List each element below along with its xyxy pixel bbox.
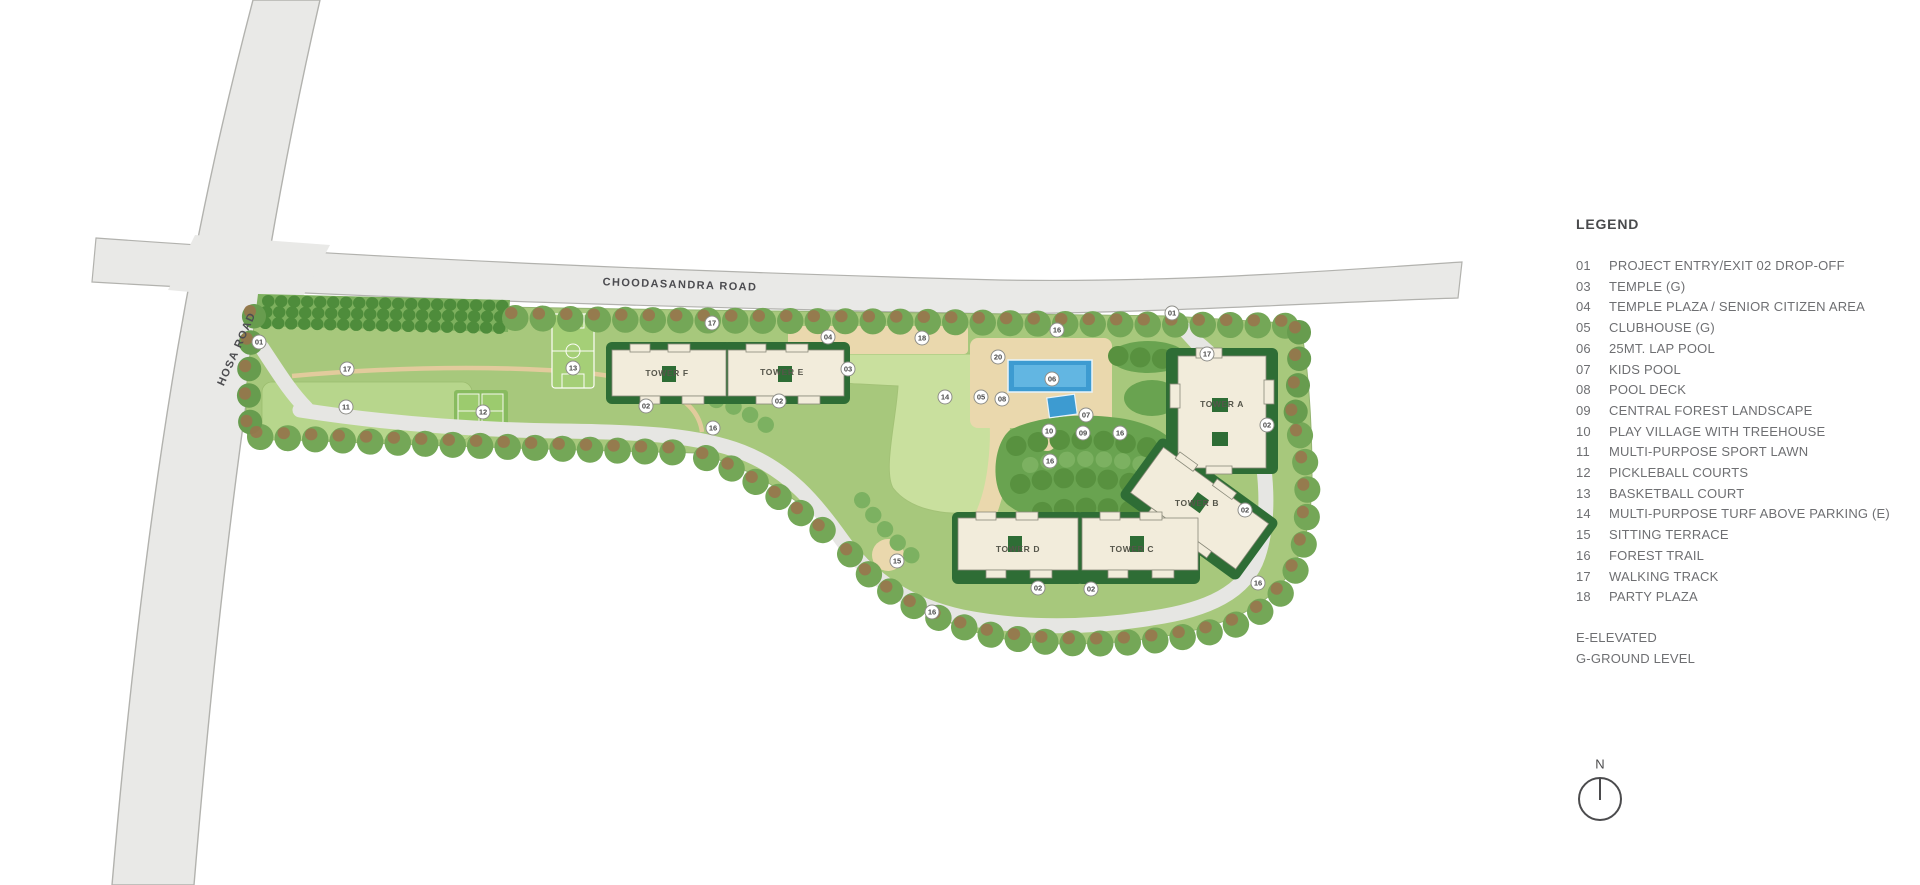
legend-item-label: CENTRAL FOREST LANDSCAPE: [1609, 401, 1812, 422]
map-marker: 13: [566, 361, 581, 376]
map-marker: 16: [1251, 576, 1266, 591]
map-marker: 02: [1238, 503, 1253, 518]
legend-item-label: TEMPLE (G): [1609, 277, 1685, 298]
legend-item-label: MULTI-PURPOSE TURF ABOVE PARKING (E): [1609, 504, 1890, 525]
map-marker: 02: [1084, 582, 1099, 597]
legend-item-label: MULTI-PURPOSE SPORT LAWN: [1609, 442, 1808, 463]
legend-item-num: 07: [1576, 360, 1609, 381]
legend-item-label: TEMPLE PLAZA / SENIOR CITIZEN AREA: [1609, 297, 1865, 318]
legend-item-num: 16: [1576, 546, 1609, 567]
legend-item-num: 13: [1576, 484, 1609, 505]
legend-item: 08POOL DECK: [1576, 380, 1916, 401]
tower-label-c: TOWER C: [1110, 544, 1154, 554]
map-marker: 05: [974, 390, 989, 405]
map-marker: 11: [339, 400, 354, 415]
legend-item-label: FOREST TRAIL: [1609, 546, 1704, 567]
orchard: [254, 294, 510, 332]
legend-item-num: 09: [1576, 401, 1609, 422]
legend-item-num: 08: [1576, 380, 1609, 401]
map-marker: 06: [1045, 372, 1060, 387]
tower-label-d: TOWER D: [996, 544, 1040, 554]
legend-item-num: 01: [1576, 256, 1609, 277]
legend-item-num: 11: [1576, 442, 1609, 463]
legend-item-num: 12: [1576, 463, 1609, 484]
tower-label-f: TOWER F: [645, 368, 688, 378]
kids-pool: [1047, 394, 1078, 418]
map-marker: 15: [890, 554, 905, 569]
legend-item-num: 10: [1576, 422, 1609, 443]
map-marker: 02: [1260, 418, 1275, 433]
legend-item: 13BASKETBALL COURT: [1576, 484, 1916, 505]
legend-item-num: 05: [1576, 318, 1609, 339]
map-marker: 16: [706, 421, 721, 436]
legend-note: G-GROUND LEVEL: [1576, 649, 1916, 670]
legend-items: 01PROJECT ENTRY/EXIT 02 DROP-OFF 03TEMPL…: [1576, 256, 1916, 608]
map-marker: 08: [995, 392, 1010, 407]
legend-item-num: 04: [1576, 297, 1609, 318]
legend-item-label: SITTING TERRACE: [1609, 525, 1729, 546]
map-marker: 02: [772, 394, 787, 409]
map-marker: 17: [705, 316, 720, 331]
site-plan-page: CHOODASANDRA ROAD HOSA ROAD TOWER F TOWE…: [0, 0, 1920, 885]
legend-item-num: 15: [1576, 525, 1609, 546]
map-marker: 16: [1043, 454, 1058, 469]
legend-item-label: CLUBHOUSE (G): [1609, 318, 1715, 339]
legend-item: 01PROJECT ENTRY/EXIT 02 DROP-OFF: [1576, 256, 1916, 277]
north-label: N: [1595, 757, 1604, 772]
map-marker: 17: [1200, 347, 1215, 362]
legend-item-label: WALKING TRACK: [1609, 567, 1719, 588]
legend-item-label: BASKETBALL COURT: [1609, 484, 1744, 505]
map-marker: 02: [639, 399, 654, 414]
legend-item-label: PROJECT ENTRY/EXIT 02 DROP-OFF: [1609, 256, 1845, 277]
legend-item-label: PICKLEBALL COURTS: [1609, 463, 1748, 484]
legend-item: 10PLAY VILLAGE WITH TREEHOUSE: [1576, 422, 1916, 443]
legend-item-num: 18: [1576, 587, 1609, 608]
legend-item: 15SITTING TERRACE: [1576, 525, 1916, 546]
map-marker: 10: [1042, 424, 1057, 439]
legend-notes: E-ELEVATED G-GROUND LEVEL: [1576, 628, 1916, 669]
legend-item: 18PARTY PLAZA: [1576, 587, 1916, 608]
map-marker: 16: [925, 605, 940, 620]
legend-item-num: 03: [1576, 277, 1609, 298]
legend-item: 04TEMPLE PLAZA / SENIOR CITIZEN AREA: [1576, 297, 1916, 318]
legend-panel: LEGEND 01PROJECT ENTRY/EXIT 02 DROP-OFF …: [1576, 216, 1916, 669]
legend-item-label: KIDS POOL: [1609, 360, 1681, 381]
tower-label-e: TOWER E: [760, 367, 804, 377]
legend-item: 11MULTI-PURPOSE SPORT LAWN: [1576, 442, 1916, 463]
map-marker: 17: [340, 362, 355, 377]
map-marker: 03: [841, 362, 856, 377]
legend-item: 12PICKLEBALL COURTS: [1576, 463, 1916, 484]
legend-item-num: 17: [1576, 567, 1609, 588]
legend-item: 16FOREST TRAIL: [1576, 546, 1916, 567]
map-marker: 02: [1031, 581, 1046, 596]
tower-label-b: TOWER B: [1175, 498, 1219, 508]
legend-item: 03TEMPLE (G): [1576, 277, 1916, 298]
legend-item: 0625MT. LAP POOL: [1576, 339, 1916, 360]
legend-item-num: 14: [1576, 504, 1609, 525]
map-marker: 09: [1076, 426, 1091, 441]
tower-label-a: TOWER A: [1200, 399, 1244, 409]
legend-item-label: 25MT. LAP POOL: [1609, 339, 1715, 360]
legend-item: 05CLUBHOUSE (G): [1576, 318, 1916, 339]
map-marker: 20: [991, 350, 1006, 365]
north-arrow-icon: [1579, 778, 1621, 820]
legend-item: 14MULTI-PURPOSE TURF ABOVE PARKING (E): [1576, 504, 1916, 525]
map-marker: 04: [821, 330, 836, 345]
legend-item: 17WALKING TRACK: [1576, 567, 1916, 588]
map-marker: 16: [1050, 323, 1065, 338]
map-marker: 12: [476, 405, 491, 420]
map-marker: 01: [252, 335, 267, 350]
legend-title: LEGEND: [1576, 216, 1916, 232]
legend-item: 07KIDS POOL: [1576, 360, 1916, 381]
map-marker: 16: [1113, 426, 1128, 441]
map-marker: 07: [1079, 408, 1094, 423]
map-marker: 18: [915, 331, 930, 346]
legend-item-num: 06: [1576, 339, 1609, 360]
legend-item-label: PARTY PLAZA: [1609, 587, 1698, 608]
legend-note: E-ELEVATED: [1576, 628, 1916, 649]
map-marker: 14: [938, 390, 953, 405]
map-marker: 01: [1165, 306, 1180, 321]
tower-a-building: [1170, 348, 1274, 474]
legend-item: 09CENTRAL FOREST LANDSCAPE: [1576, 401, 1916, 422]
legend-item-label: PLAY VILLAGE WITH TREEHOUSE: [1609, 422, 1825, 443]
legend-item-label: POOL DECK: [1609, 380, 1686, 401]
